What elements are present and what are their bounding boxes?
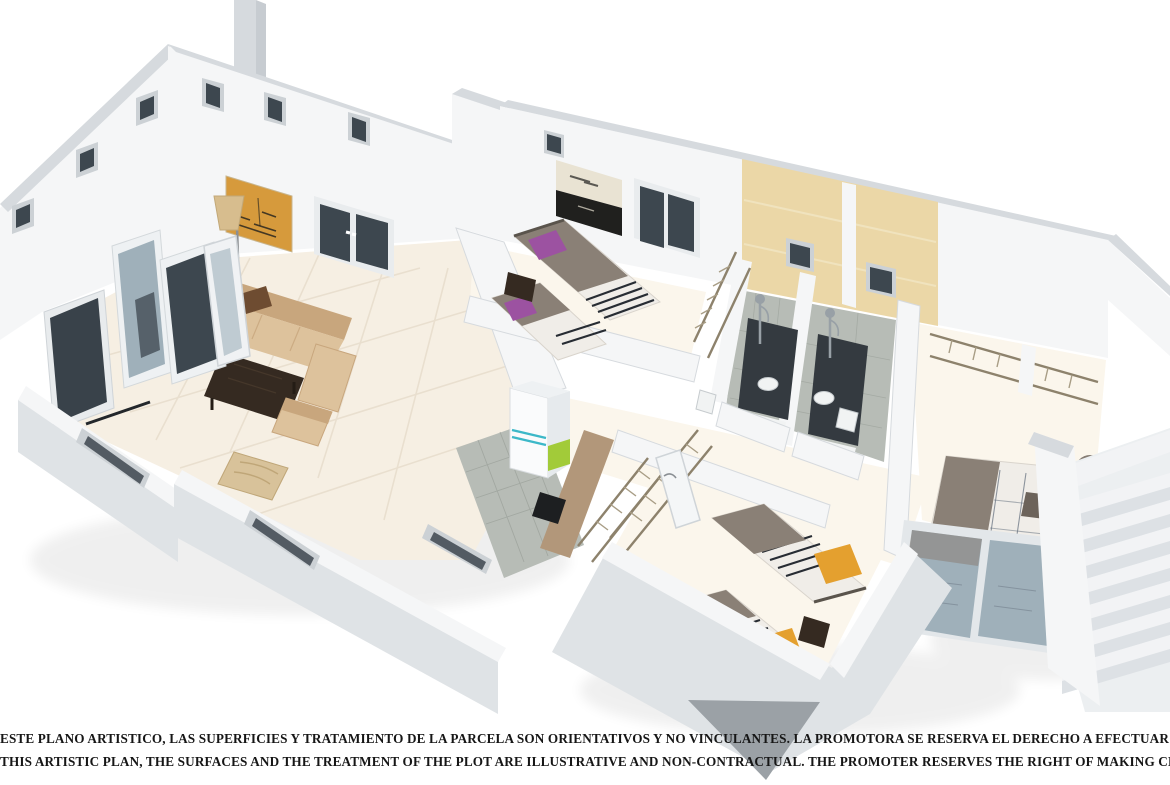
fridge bbox=[510, 381, 570, 478]
toilet bbox=[814, 392, 834, 405]
washbasin bbox=[696, 390, 716, 414]
disclaimer: ESTE PLANO ARTISTICO, LAS SUPERFICIES Y … bbox=[0, 727, 1170, 773]
disclaimer-line-english: THIS ARTISTIC PLAN, THE SURFACES AND THE… bbox=[0, 750, 1170, 773]
corner-pillar bbox=[452, 94, 500, 240]
chimney-pillar-side bbox=[256, 0, 266, 86]
disclaimer-line-spanish: ESTE PLANO ARTISTICO, LAS SUPERFICIES Y … bbox=[0, 727, 1170, 750]
bath-wall-divider bbox=[842, 182, 856, 308]
floor-plan-page: ESTE PLANO ARTISTICO, LAS SUPERFICIES Y … bbox=[0, 0, 1170, 785]
floor-plan-render bbox=[0, 0, 1170, 785]
shower-panel bbox=[738, 318, 798, 420]
toilet bbox=[758, 378, 778, 391]
washbasin bbox=[836, 408, 858, 432]
shower-panel bbox=[808, 334, 868, 446]
